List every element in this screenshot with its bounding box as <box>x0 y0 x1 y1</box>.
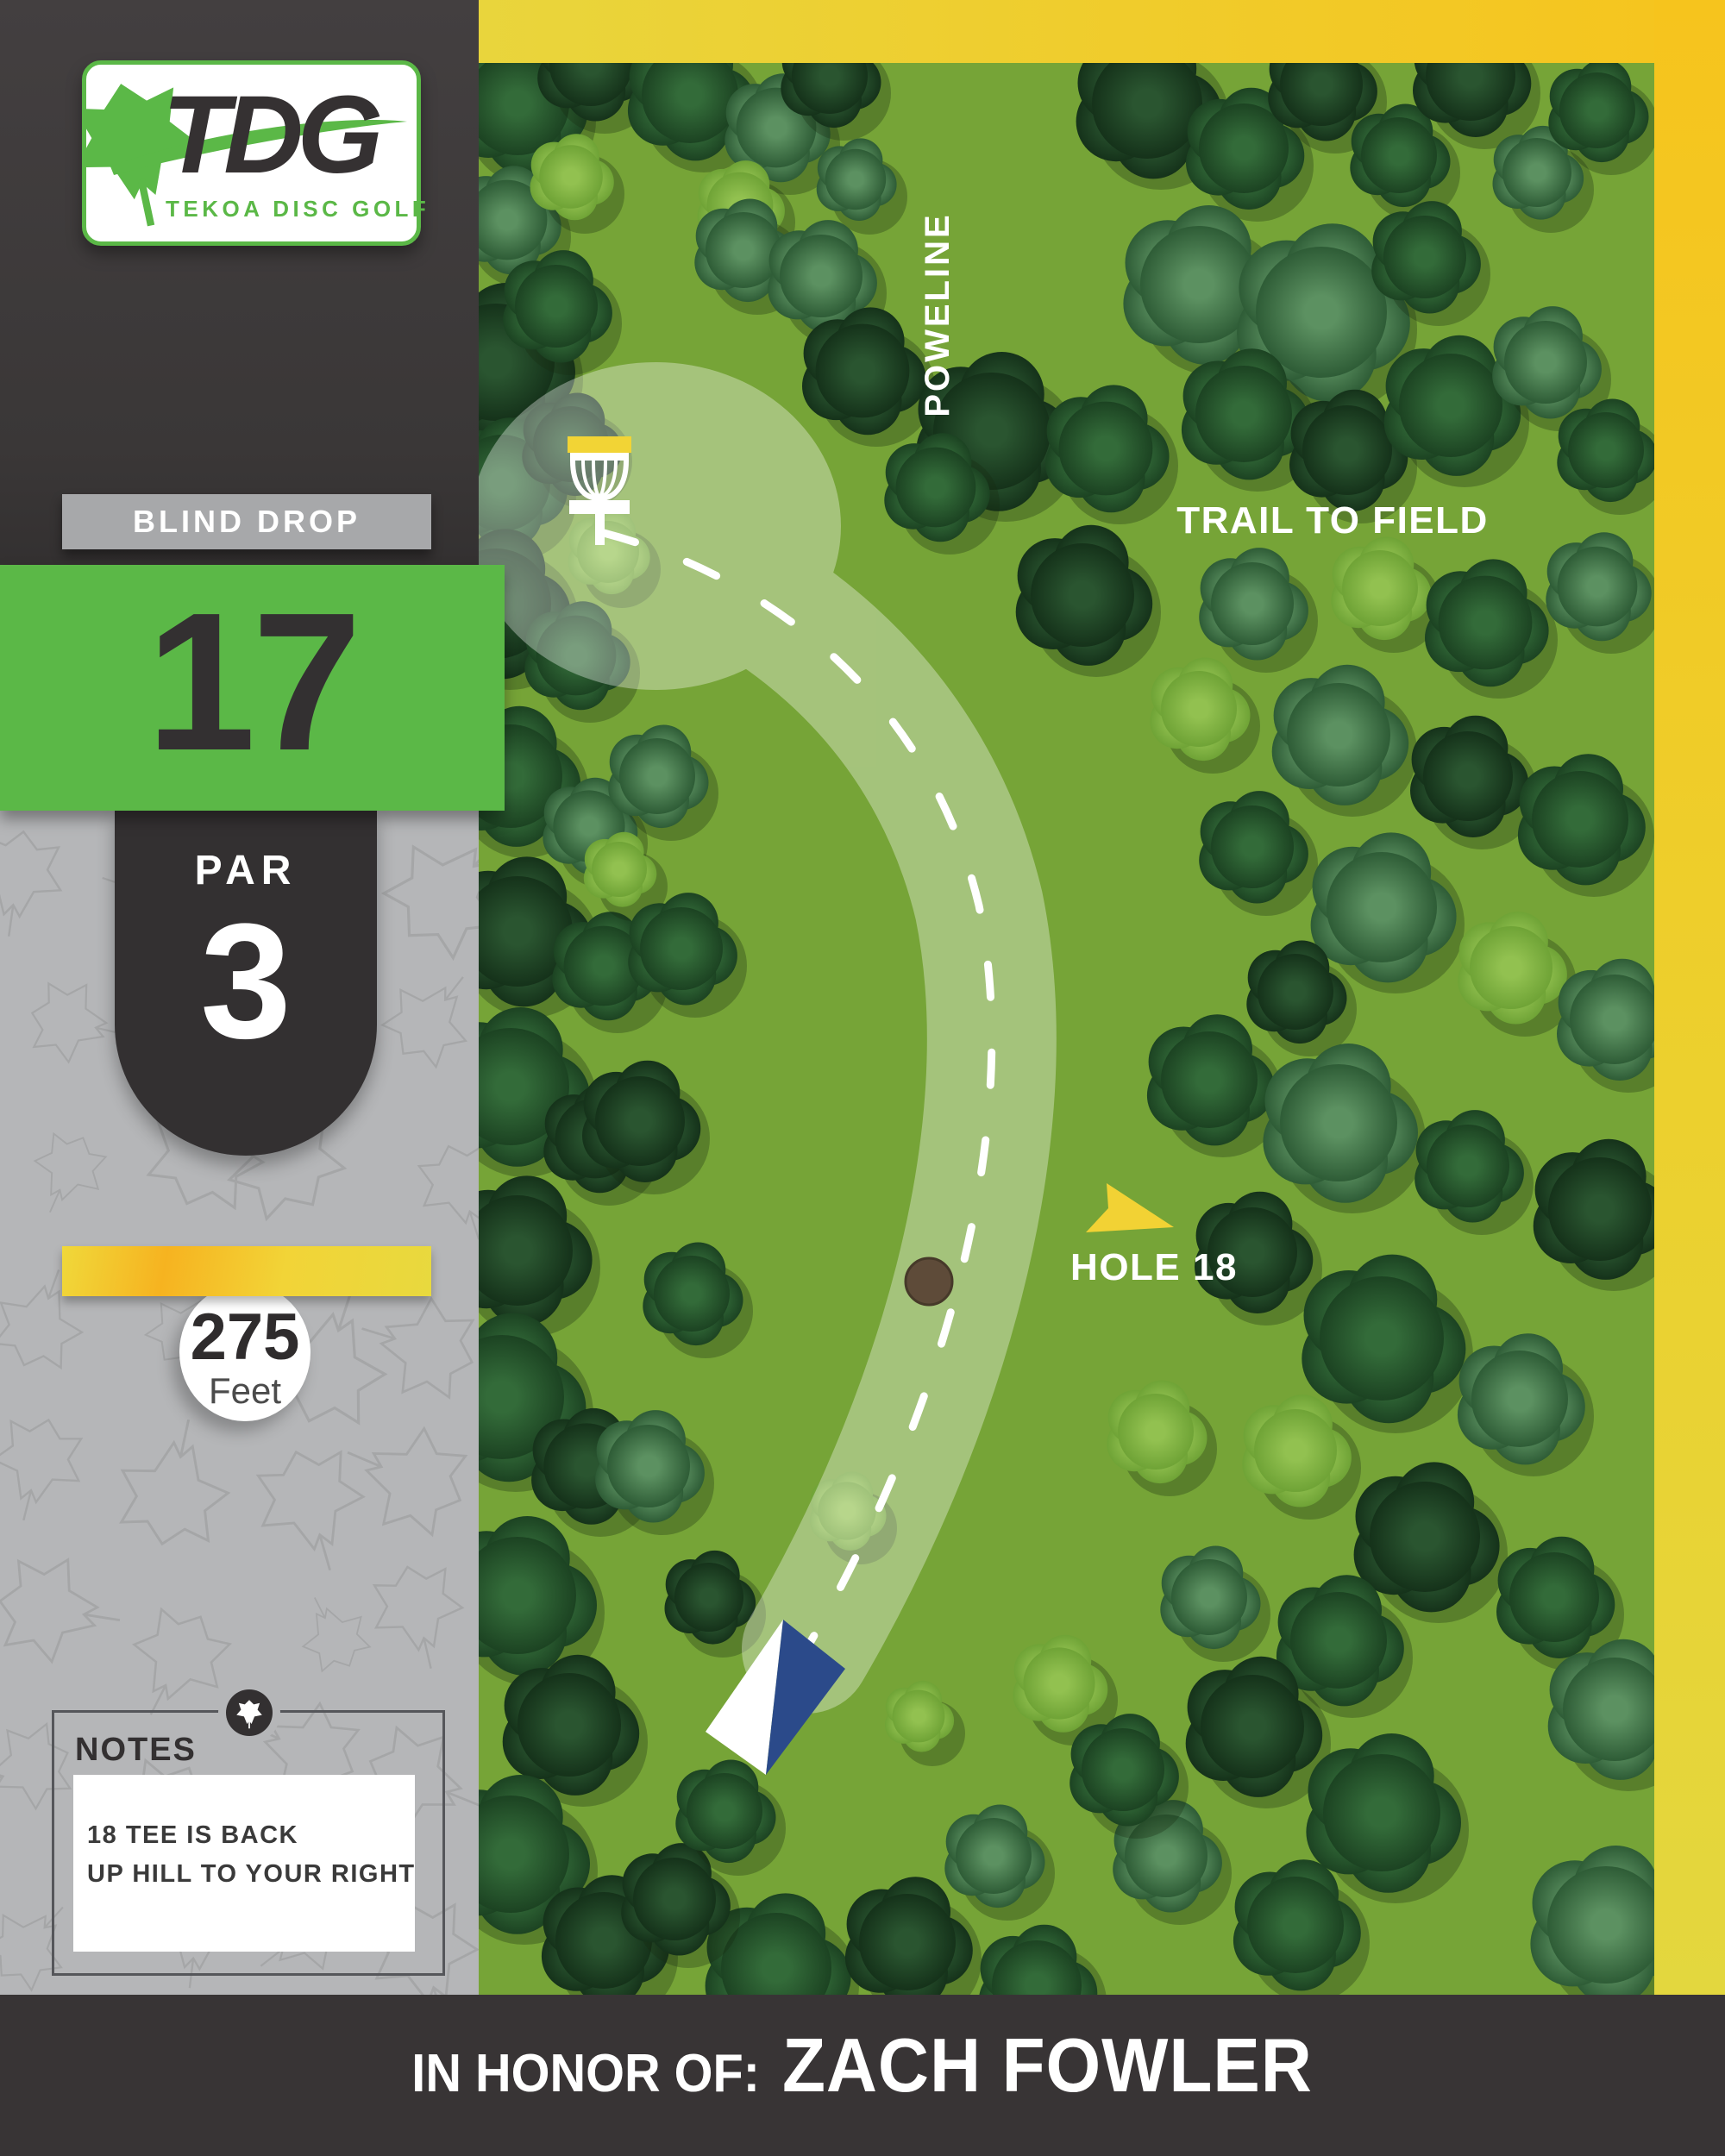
notes-section: NOTES 18 TEE IS BACK UP HILL TO YOUR RIG… <box>52 1710 445 1976</box>
leaf-outline <box>246 1438 380 1584</box>
notes-title: NOTES <box>75 1732 197 1769</box>
leaf-outline <box>0 1409 91 1531</box>
leaf-outline <box>0 1551 128 1671</box>
notes-card: 18 TEE IS BACK UP HILL TO YOUR RIGHT <box>73 1775 415 1952</box>
logo-name: TEKOA DISC GOLF <box>166 196 430 222</box>
notes-line: UP HILL TO YOUR RIGHT <box>87 1855 415 1894</box>
frame-top <box>479 0 1725 63</box>
leaf-outline <box>409 1133 479 1252</box>
distance-accent-bar <box>62 1246 431 1296</box>
distance-circle: 275 Feet <box>179 1283 310 1421</box>
leaf-outline <box>367 811 479 975</box>
frame-right <box>1654 0 1725 1995</box>
trail-label: TRAIL TO FIELD <box>1176 499 1489 542</box>
footer-honoree-name: ZACH FOWLER <box>782 2021 1313 2109</box>
footer-bar: IN HONOR OF: ZACH FOWLER <box>0 1995 1725 2156</box>
distance-unit: Feet <box>209 1370 281 1412</box>
hole-18-label: HOLE 18 <box>1070 1246 1238 1288</box>
leaf-outline <box>285 1583 379 1680</box>
leaf-outline <box>110 1408 241 1555</box>
footer-prefix: IN HONOR OF: <box>412 2043 761 2104</box>
leaf-outline <box>328 1405 479 1548</box>
hole-map-poster: POWELINE TRAIL TO FIELD HOLE 18 TDG TEKO… <box>0 0 1725 2156</box>
hole-number: 17 <box>147 570 359 795</box>
par-label: PAR <box>115 847 377 894</box>
leaf-icon <box>232 1695 267 1730</box>
leaf-outline <box>0 825 68 943</box>
notes-leaf-badge <box>226 1689 273 1736</box>
tdg-logo-card: TDG TEKOA DISC GOLF <box>82 60 421 246</box>
par-value: 3 <box>115 899 377 1063</box>
distance-value: 275 <box>191 1305 300 1370</box>
leaf-outline <box>348 1282 479 1409</box>
blind-drop-badge: BLIND DROP <box>62 494 431 549</box>
obstacle-dot <box>906 1258 952 1305</box>
logo-acronym: TDG <box>162 72 377 198</box>
hole-number-band: 17 <box>0 565 505 811</box>
par-pill: PAR 3 <box>115 811 377 1156</box>
leaf-outline <box>371 951 479 1079</box>
footer-dedication: IN HONOR OF: ZACH FOWLER <box>412 2021 1313 2109</box>
leaf-outline <box>18 1124 115 1226</box>
leaf-outline <box>364 1557 474 1678</box>
notes-line: 18 TEE IS BACK <box>87 1816 415 1855</box>
powerline-label: POWELINE <box>919 212 957 417</box>
blind-drop-label: BLIND DROP <box>133 504 361 540</box>
